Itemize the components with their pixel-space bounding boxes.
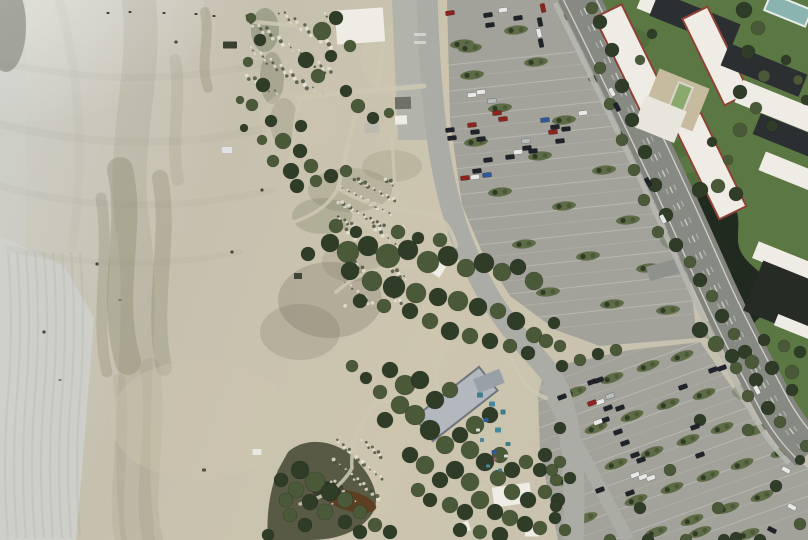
- tree-canopy: [383, 525, 397, 539]
- beach-object: [175, 41, 178, 44]
- tree-canopy: [426, 391, 444, 409]
- tree-canopy: [337, 492, 353, 508]
- tree-canopy: [502, 510, 518, 526]
- tree-canopy: [533, 521, 547, 535]
- dune-speckle: [261, 31, 264, 34]
- tree-canopy: [706, 290, 718, 302]
- dune-speckle: [394, 300, 397, 303]
- beach-pavilion-roof: [335, 7, 385, 44]
- dune-speckle: [383, 211, 385, 213]
- parked-car: [485, 22, 495, 28]
- dune-speckle: [348, 448, 351, 451]
- tree-canopy: [574, 354, 586, 366]
- tree-canopy: [417, 251, 439, 273]
- tree-canopy: [605, 43, 619, 57]
- tree-canopy: [741, 45, 755, 59]
- tree-canopy: [340, 85, 352, 97]
- dune-speckle: [264, 59, 266, 61]
- dune-speckle: [353, 178, 356, 181]
- parked-car: [483, 157, 492, 163]
- tree-canopy: [243, 57, 253, 67]
- dune-speckle: [289, 70, 293, 74]
- beach-object: [486, 465, 490, 468]
- tree-canopy: [461, 473, 479, 491]
- dune-speckle: [312, 87, 314, 89]
- dune-speckle: [314, 90, 316, 92]
- dune-speckle: [254, 53, 256, 55]
- tree-canopy: [353, 525, 367, 539]
- dune-speckle: [303, 23, 306, 26]
- tree-canopy: [593, 15, 607, 29]
- beach-object: [489, 402, 495, 407]
- tree-canopy: [457, 259, 475, 277]
- tree-canopy: [353, 294, 367, 308]
- dune-speckle: [381, 194, 383, 196]
- dune-speckle: [301, 79, 305, 83]
- tree-canopy: [549, 512, 561, 524]
- tree-canopy: [770, 480, 782, 492]
- tree-canopy: [778, 340, 790, 352]
- dune-speckle: [324, 12, 326, 14]
- dune-speckle: [365, 441, 368, 444]
- dune-speckle: [288, 18, 291, 21]
- dune-speckle: [371, 446, 374, 449]
- tree-canopy: [442, 382, 458, 398]
- parked-car: [550, 124, 559, 130]
- beach-object: [504, 455, 508, 458]
- tree-canopy: [262, 529, 274, 540]
- tree-canopy: [785, 365, 799, 379]
- tree-canopy: [256, 78, 270, 92]
- tree-canopy: [750, 102, 762, 114]
- dune-speckle: [314, 66, 317, 69]
- dune-speckle: [361, 460, 365, 464]
- tree-canopy: [471, 491, 489, 509]
- tree-canopy: [594, 62, 606, 74]
- tree-canopy: [492, 527, 508, 540]
- dune-speckle: [365, 218, 367, 220]
- tree-canopy: [539, 334, 553, 348]
- dune-speckle: [389, 179, 393, 183]
- dune-speckle: [384, 178, 388, 182]
- beach-object: [231, 251, 234, 254]
- tree-canopy: [457, 504, 473, 520]
- dune-speckle: [351, 288, 353, 290]
- tree-canopy: [358, 236, 378, 256]
- dune-speckle: [309, 34, 312, 37]
- tree-canopy: [765, 361, 779, 375]
- dune-speckle: [343, 219, 346, 222]
- tree-canopy: [293, 144, 307, 158]
- parked-car: [445, 127, 454, 133]
- tree-canopy: [669, 238, 683, 252]
- algae-streak: [159, 178, 164, 368]
- dune-speckle: [343, 304, 347, 308]
- dune-speckle: [371, 301, 375, 305]
- tree-canopy: [736, 2, 752, 18]
- tree-canopy: [383, 276, 405, 298]
- dune-speckle: [251, 25, 254, 28]
- beach-object: [213, 15, 216, 17]
- dune-speckle: [279, 39, 283, 43]
- tree-canopy: [693, 273, 707, 287]
- tree-canopy: [490, 470, 506, 486]
- dune-speckle: [367, 446, 370, 449]
- algae-streak: [175, 60, 178, 180]
- tree-canopy: [564, 472, 576, 484]
- tree-canopy: [625, 113, 639, 127]
- dune-speckle: [252, 50, 254, 52]
- dune-speckle: [345, 227, 349, 231]
- tree-canopy: [473, 525, 487, 539]
- dune-speckle: [276, 93, 278, 95]
- dune-speckle: [350, 284, 352, 286]
- dune-speckle: [373, 451, 376, 454]
- tree-canopy: [592, 348, 604, 360]
- algae-streak: [101, 198, 107, 372]
- beach-object: [195, 13, 198, 15]
- dune-speckle: [375, 473, 377, 475]
- beach-object: [43, 331, 46, 334]
- tree-canopy: [301, 247, 315, 261]
- tree-canopy: [338, 515, 352, 529]
- dune-speckle: [307, 30, 310, 33]
- dune-speckle: [267, 30, 271, 34]
- algae-streak: [120, 170, 128, 362]
- dune-speckle: [388, 212, 390, 214]
- parked-car: [447, 135, 456, 141]
- dune-speckle: [357, 177, 361, 181]
- parked-car: [513, 149, 522, 155]
- tree-canopy: [692, 182, 708, 198]
- tree-canopy: [453, 523, 467, 537]
- tree-canopy: [436, 436, 454, 454]
- parked-car: [487, 98, 496, 104]
- tree-canopy: [517, 516, 533, 532]
- dune-speckle: [382, 209, 384, 211]
- tree-canopy: [452, 427, 468, 443]
- dune-speckle: [253, 76, 257, 80]
- tree-canopy: [708, 336, 724, 352]
- parked-car: [492, 110, 501, 116]
- dune-speckle: [395, 243, 397, 245]
- tree-canopy: [550, 500, 562, 512]
- tree-canopy: [429, 288, 447, 306]
- dune-speckle: [350, 222, 353, 225]
- dune-speckle: [358, 212, 360, 214]
- tree-canopy: [462, 328, 478, 344]
- dune-speckle: [329, 70, 333, 74]
- beach-object: [484, 418, 489, 422]
- tree-canopy: [420, 420, 440, 440]
- dune-speckle: [292, 50, 294, 52]
- dune-speckle: [332, 458, 336, 462]
- dune-speckle: [281, 43, 285, 47]
- dune-speckle: [337, 215, 340, 218]
- tree-canopy: [353, 505, 367, 519]
- tree-canopy: [412, 232, 424, 244]
- dune-speckle: [284, 11, 286, 13]
- tree-canopy: [311, 69, 325, 83]
- dune-speckle: [356, 477, 359, 480]
- tree-canopy: [521, 346, 535, 360]
- dune-speckle: [327, 67, 331, 71]
- kiosk-dark: [395, 97, 411, 110]
- parked-car: [467, 92, 476, 98]
- dune-speckle: [340, 487, 344, 491]
- tree-canopy: [711, 179, 725, 193]
- tree-canopy: [634, 502, 646, 514]
- dune-speckle: [388, 237, 390, 239]
- tree-canopy: [504, 462, 520, 478]
- tree-canopy: [279, 493, 293, 507]
- tree-canopy: [340, 165, 352, 177]
- dune-speckle: [340, 466, 342, 468]
- dune-speckle: [372, 225, 376, 229]
- tree-canopy: [329, 11, 343, 25]
- tree-canopy: [446, 461, 464, 479]
- dune-speckle: [336, 201, 339, 204]
- dune-speckle: [380, 192, 382, 194]
- beach-object: [222, 147, 232, 153]
- tree-canopy: [469, 298, 487, 316]
- dune-speckle: [400, 302, 403, 305]
- dune-speckle: [360, 439, 362, 441]
- dune-speckle: [375, 494, 379, 498]
- dune-speckle: [342, 443, 345, 446]
- tree-canopy: [525, 272, 543, 290]
- dune-speckle: [353, 498, 355, 500]
- tree-canopy: [474, 253, 494, 273]
- dune-speckle: [355, 455, 359, 459]
- dune-speckle: [358, 480, 361, 483]
- dune-speckle: [381, 234, 385, 238]
- parked-car: [555, 138, 564, 144]
- parked-car: [561, 126, 570, 132]
- dune-speckle: [359, 483, 362, 486]
- dune-speckle: [269, 33, 273, 37]
- dune-speckle: [372, 448, 375, 451]
- tree-canopy: [377, 299, 391, 313]
- tree-canopy: [723, 155, 733, 165]
- tree-canopy: [360, 372, 372, 384]
- tree-canopy: [628, 164, 640, 176]
- dune-speckle: [352, 475, 355, 478]
- parked-car: [460, 175, 469, 181]
- beach-object: [480, 438, 484, 442]
- beach-object: [494, 458, 497, 461]
- dune-speckle: [346, 231, 350, 235]
- dune-speckle: [305, 27, 308, 30]
- beach-object: [498, 469, 502, 472]
- tree-canopy: [786, 384, 798, 396]
- kiosk-white: [395, 115, 407, 124]
- tree-canopy: [283, 508, 297, 522]
- tree-canopy: [554, 422, 566, 434]
- dune-speckle: [265, 26, 269, 30]
- tree-canopy: [510, 259, 526, 275]
- dune-speckle: [345, 468, 347, 470]
- parked-car: [476, 89, 485, 95]
- dune-speckle: [260, 52, 262, 54]
- tree-canopy: [730, 362, 742, 374]
- tree-canopy: [325, 50, 337, 62]
- tree-canopy: [546, 464, 558, 476]
- tree-canopy: [341, 262, 359, 280]
- dune-speckle: [378, 227, 382, 231]
- dune-speckle: [336, 439, 338, 441]
- tree-canopy: [402, 447, 418, 463]
- dune-speckle: [347, 189, 349, 191]
- tree-canopy: [329, 219, 343, 233]
- beach-object: [223, 42, 237, 49]
- dune-speckle: [357, 290, 360, 293]
- tree-canopy: [422, 313, 438, 329]
- tree-canopy: [538, 448, 552, 462]
- tree-canopy: [793, 75, 803, 85]
- tree-canopy: [707, 137, 717, 147]
- parked-car: [470, 129, 479, 135]
- tree-canopy: [438, 246, 458, 266]
- parked-car: [521, 138, 530, 144]
- tree-canopy: [337, 241, 359, 263]
- dune-speckle: [382, 224, 386, 228]
- tree-canopy: [556, 360, 568, 372]
- dune-speckle: [262, 55, 264, 57]
- tree-canopy: [310, 175, 322, 187]
- tree-canopy: [781, 55, 791, 65]
- tree-canopy: [647, 29, 657, 39]
- dune-speckle: [376, 220, 379, 223]
- dune-speckle: [291, 73, 295, 77]
- parked-car: [505, 154, 514, 160]
- dune-speckle: [343, 446, 346, 449]
- tree-canopy: [795, 455, 805, 465]
- dune-speckle: [298, 49, 300, 51]
- dune-speckle: [395, 268, 399, 272]
- parked-car: [472, 168, 481, 174]
- dune-speckle: [303, 83, 307, 87]
- beach-object: [501, 410, 506, 415]
- dune-speckle: [366, 444, 369, 447]
- dune-speckle: [347, 204, 351, 208]
- dune-speckle: [278, 13, 280, 15]
- tree-canopy: [254, 34, 266, 46]
- beach-object: [477, 393, 483, 398]
- dune-speckle: [299, 28, 302, 31]
- tree-canopy: [267, 155, 279, 167]
- tree-canopy: [715, 309, 729, 323]
- dune-speckle: [391, 269, 395, 273]
- tree-canopy: [476, 453, 494, 471]
- beach-object: [119, 299, 122, 301]
- tree-canopy: [758, 334, 770, 346]
- tree-canopy: [482, 333, 498, 349]
- tree-canopy: [490, 303, 506, 319]
- dune-speckle: [363, 181, 367, 185]
- tree-canopy: [487, 504, 503, 520]
- tree-canopy: [304, 159, 318, 173]
- dune-speckle: [333, 480, 336, 483]
- tree-canopy: [610, 344, 622, 356]
- dune-speckle: [319, 64, 322, 67]
- tree-canopy: [376, 244, 400, 268]
- tree-canopy: [538, 485, 552, 499]
- dune-speckle: [353, 192, 356, 195]
- tree-canopy: [257, 135, 267, 145]
- dune-speckle: [379, 475, 382, 478]
- dune-speckle: [317, 61, 320, 64]
- tree-canopy: [638, 194, 650, 206]
- dune-speckle: [247, 77, 251, 81]
- parked-car: [470, 174, 479, 180]
- tree-canopy: [664, 464, 676, 476]
- tree-canopy: [295, 120, 307, 132]
- dune-speckle: [389, 241, 391, 243]
- tree-canopy: [367, 112, 379, 124]
- tree-canopy: [384, 108, 394, 118]
- tree-canopy: [346, 360, 358, 372]
- parked-car: [445, 10, 455, 16]
- dune-speckle: [273, 65, 276, 68]
- tree-canopy: [411, 483, 425, 497]
- tree-canopy: [559, 524, 571, 536]
- tree-canopy: [441, 322, 459, 340]
- beach-shed: [294, 273, 302, 279]
- tree-canopy: [402, 303, 418, 319]
- tree-canopy: [652, 226, 664, 238]
- dune-speckle: [285, 74, 288, 77]
- dune-speckle: [266, 63, 268, 65]
- tree-canopy: [794, 518, 806, 530]
- tree-canopy: [391, 225, 405, 239]
- dune-speckle: [259, 27, 262, 30]
- tree-canopy: [321, 483, 339, 501]
- dune-speckle: [374, 471, 376, 473]
- tree-canopy: [794, 346, 806, 358]
- dune-speckle: [250, 46, 252, 48]
- dune-speckle: [362, 482, 365, 485]
- tree-canopy: [350, 226, 362, 238]
- tree-canopy: [533, 463, 547, 477]
- tree-canopy: [275, 133, 291, 149]
- tree-canopy: [728, 328, 740, 340]
- tree-canopy: [761, 401, 775, 415]
- algae-streak: [205, 12, 208, 88]
- dune-speckle: [279, 64, 282, 67]
- tree-canopy: [766, 120, 778, 132]
- tree-canopy: [313, 22, 331, 40]
- dune-speckle: [319, 40, 323, 44]
- beach-object: [506, 442, 511, 446]
- dune-speckle: [272, 61, 275, 64]
- tree-canopy: [548, 317, 560, 329]
- dune-speckle: [374, 189, 376, 191]
- tree-canopy: [507, 312, 525, 330]
- dune-speckle: [293, 17, 296, 20]
- dune-speckle: [286, 15, 289, 18]
- dune-speckle: [369, 469, 371, 471]
- dune-speckle: [377, 450, 381, 454]
- dune-speckle: [344, 449, 347, 452]
- dune-speckle: [293, 77, 297, 81]
- beach-object: [492, 450, 497, 454]
- beach-object: [253, 449, 262, 455]
- tree-canopy: [742, 390, 754, 402]
- dune-speckle: [368, 466, 370, 468]
- tree-canopy: [493, 263, 511, 281]
- dune-speckle: [290, 47, 292, 49]
